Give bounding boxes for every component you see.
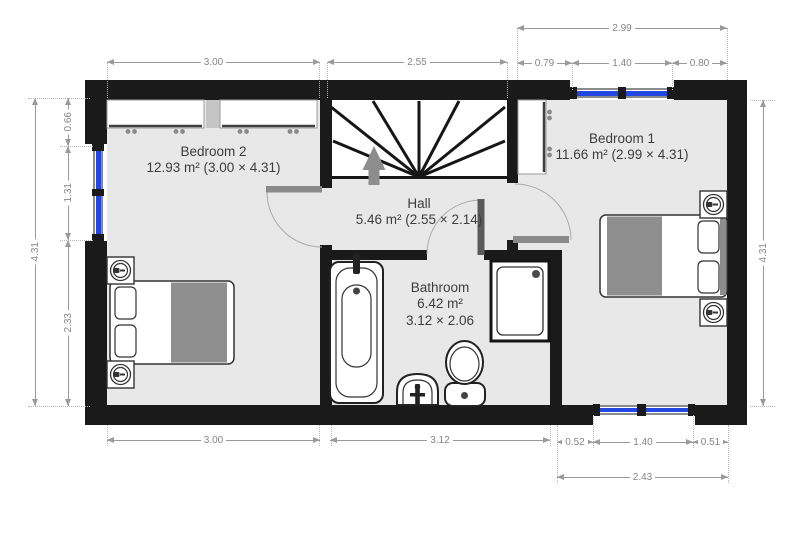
- lamp-bulb: [707, 310, 713, 315]
- dim-label: 2.99: [609, 23, 634, 34]
- room-name: Hall: [331, 196, 507, 212]
- room-details: 12.93 m² (3.00 × 4.31): [107, 160, 320, 176]
- bedroom1-label: Bedroom 1 11.66 m² (2.99 × 4.31): [517, 131, 727, 164]
- wardrobe-knob: [244, 129, 249, 134]
- wardrobe-knob: [180, 129, 185, 134]
- faucet-icon: [353, 254, 360, 274]
- room-details: 11.66 m² (2.99 × 4.31): [517, 147, 727, 163]
- pillow: [698, 221, 719, 253]
- bathroom-label: Bathroom 6.42 m² 3.12 × 2.06: [360, 280, 520, 329]
- wardrobe-knob: [288, 129, 293, 134]
- nightstand-lamp: [107, 257, 134, 284]
- drain-icon: [532, 270, 540, 278]
- dim-label: 3.00: [201, 57, 226, 68]
- extension-line: [750, 100, 775, 101]
- door-swing-arc: [267, 192, 322, 247]
- dim-right-total: 4.31: [757, 100, 769, 406]
- headboard: [720, 217, 726, 295]
- floor-plan: Bedroom 2 12.93 m² (3.00 × 4.31) Bedroom…: [0, 0, 800, 537]
- dim-label: 0.80: [687, 58, 712, 69]
- room-details: 5.46 m² (2.55 × 2.14): [331, 212, 507, 228]
- hall-label: Hall 5.46 m² (2.55 × 2.14): [331, 196, 507, 229]
- extension-line: [319, 425, 320, 446]
- fixtures-layer: [0, 0, 800, 537]
- extension-line: [727, 28, 728, 80]
- flush-button-icon: [461, 392, 468, 399]
- extension-line: [572, 63, 573, 90]
- bed-bedroom2: [110, 281, 234, 364]
- extension-line: [107, 425, 108, 446]
- extension-line: [319, 62, 320, 98]
- drain-icon: [353, 288, 360, 295]
- wardrobe-bedroom2-right: [220, 100, 317, 134]
- dim-bottom-bedroom1-right: 0.51: [693, 436, 728, 448]
- extension-line: [550, 425, 551, 446]
- wardrobe-knob: [126, 129, 131, 134]
- wardrobe-knob: [547, 116, 552, 121]
- wardrobe-knob: [132, 129, 137, 134]
- blanket: [607, 217, 662, 296]
- wardrobe-bedroom2-left: [107, 100, 204, 134]
- bedroom2-label: Bedroom 2 12.93 m² (3.00 × 4.31): [107, 144, 320, 177]
- wardrobe-body: [220, 100, 317, 128]
- dim-left-upper: 0.66: [62, 98, 74, 146]
- extension-line: [331, 425, 332, 446]
- dim-top-bedroom2-width: 3.00: [107, 56, 320, 68]
- faucet-icon: [410, 393, 425, 397]
- door-swing-arc: [515, 184, 571, 240]
- extension-line: [28, 406, 90, 407]
- bed-bedroom1: [600, 215, 727, 297]
- nightstand-lamp: [700, 299, 727, 326]
- pillow: [115, 287, 136, 319]
- dim-left-total: 4.31: [29, 98, 41, 406]
- room-size: 3.12 × 2.06: [360, 313, 520, 329]
- lamp-bulb: [114, 268, 120, 273]
- dim-left-lower: 2.33: [62, 240, 74, 406]
- extension-line: [593, 415, 594, 448]
- lamp-bulb: [114, 372, 120, 377]
- dim-label: 0.51: [698, 437, 723, 448]
- extension-line: [728, 425, 729, 483]
- extension-line: [672, 63, 673, 90]
- wardrobe-body: [107, 100, 204, 128]
- wardrobe-knob: [294, 129, 299, 134]
- extension-line: [60, 240, 93, 241]
- nightstand-lamp: [700, 191, 727, 218]
- nightstand-lamp: [107, 361, 134, 388]
- extension-line: [60, 146, 93, 147]
- dim-label: 3.00: [201, 435, 226, 446]
- dim-label: 2.55: [404, 57, 429, 68]
- dim-label: 3.12: [427, 435, 452, 446]
- room-name: Bedroom 1: [517, 131, 727, 147]
- dim-top-bedroom1-right: 0.80: [672, 57, 727, 69]
- extension-line: [693, 415, 694, 448]
- pillow: [698, 261, 719, 293]
- dim-label: 0.66: [63, 109, 74, 134]
- wardrobe-knob: [174, 129, 179, 134]
- blanket: [171, 283, 227, 363]
- room-name: Bedroom 2: [107, 144, 320, 160]
- extension-line: [28, 98, 90, 99]
- dim-top-bedroom1-total: 2.99: [517, 22, 727, 34]
- stair-tread: [419, 141, 505, 177]
- pillow: [115, 325, 136, 357]
- wardrobe-knob: [238, 129, 243, 134]
- faucet-icon: [415, 384, 421, 390]
- door-leaf: [266, 186, 322, 193]
- lamp-bulb: [707, 202, 713, 207]
- room-name: Bathroom: [360, 280, 520, 296]
- extension-line: [750, 406, 775, 407]
- bedroom1-door: [513, 184, 571, 243]
- toilet: [445, 341, 485, 406]
- dim-label: 1.40: [609, 58, 634, 69]
- extension-line: [507, 62, 508, 98]
- dim-label: 1.31: [63, 180, 74, 205]
- door-leaf: [513, 236, 569, 243]
- extension-line: [327, 62, 328, 98]
- dim-bottom-bedroom2-width: 3.00: [107, 434, 320, 446]
- washbasin: [397, 374, 438, 405]
- dim-label: 0.79: [532, 58, 557, 69]
- dim-label: 2.33: [63, 310, 74, 335]
- dim-label: 1.40: [630, 437, 655, 448]
- extension-line: [557, 425, 558, 483]
- dim-top-bedroom1-left: 0.79: [517, 57, 572, 69]
- extension-line: [107, 62, 108, 98]
- dim-bottom-bedroom1-window: 1.40: [593, 436, 693, 448]
- dim-label: 4.31: [30, 239, 41, 264]
- dim-bottom-bedroom1-total: 2.43: [557, 471, 728, 483]
- stair-tread: [419, 107, 505, 177]
- wardrobe-knob: [547, 110, 552, 115]
- dim-label: 2.43: [630, 472, 655, 483]
- dim-label: 0.52: [562, 437, 587, 448]
- dim-top-bedroom1-window: 1.40: [572, 57, 672, 69]
- stair-tread: [419, 101, 459, 177]
- dim-bottom-bedroom1-left: 0.52: [557, 436, 593, 448]
- extension-line: [517, 28, 518, 80]
- dim-label: 4.31: [758, 240, 769, 265]
- stairs-direction-arrow: [363, 146, 386, 185]
- dim-top-hall-width: 2.55: [327, 56, 507, 68]
- room-area: 6.42 m²: [360, 296, 520, 312]
- bedroom2-door: [266, 186, 322, 247]
- dim-bottom-bathroom-width: 3.12: [330, 434, 550, 446]
- dim-left-window: 1.31: [62, 146, 74, 240]
- staircase: [331, 101, 507, 178]
